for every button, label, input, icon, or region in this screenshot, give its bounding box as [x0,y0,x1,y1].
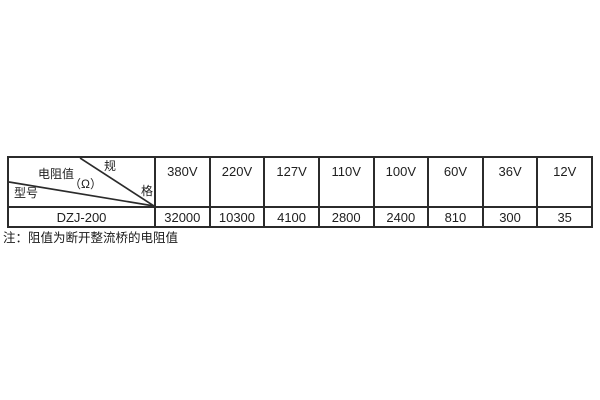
resistance-value-cell: 32000 [155,207,210,227]
table-row: DZJ-200 32000 10300 4100 2800 2400 810 3… [8,207,592,227]
footnote: 注：阻值为断开整流桥的电阻值 [3,227,178,246]
voltage-header-380v: 380V [155,157,210,207]
corner-cell: 规 格 电阻值 （Ω） 型号 [8,157,155,207]
corner-model-label: 型号 [14,187,38,200]
corner-ohm-unit-label: （Ω） [69,178,102,191]
resistance-value-cell: 810 [428,207,483,227]
resistance-value-cell: 4100 [264,207,319,227]
corner-spec-label-top: 规 [104,160,116,173]
resistance-spec-table: 规 格 电阻值 （Ω） 型号 380V 220V 127V 110V 100V … [7,156,593,228]
page: 规 格 电阻值 （Ω） 型号 380V 220V 127V 110V 100V … [0,0,600,400]
voltage-header-220v: 220V [210,157,265,207]
resistance-value-cell: 2800 [319,207,374,227]
corner-spec-label-bottom: 格 [141,185,153,198]
resistance-value-cell: 10300 [210,207,265,227]
voltage-header-100v: 100V [374,157,429,207]
model-cell: DZJ-200 [8,207,155,227]
resistance-value-cell: 35 [537,207,592,227]
voltage-header-60v: 60V [428,157,483,207]
resistance-value-cell: 300 [483,207,538,227]
voltage-header-110v: 110V [319,157,374,207]
header-row: 规 格 电阻值 （Ω） 型号 380V 220V 127V 110V 100V … [8,157,592,207]
voltage-header-127v: 127V [264,157,319,207]
voltage-header-36v: 36V [483,157,538,207]
voltage-header-12v: 12V [537,157,592,207]
resistance-value-cell: 2400 [374,207,429,227]
